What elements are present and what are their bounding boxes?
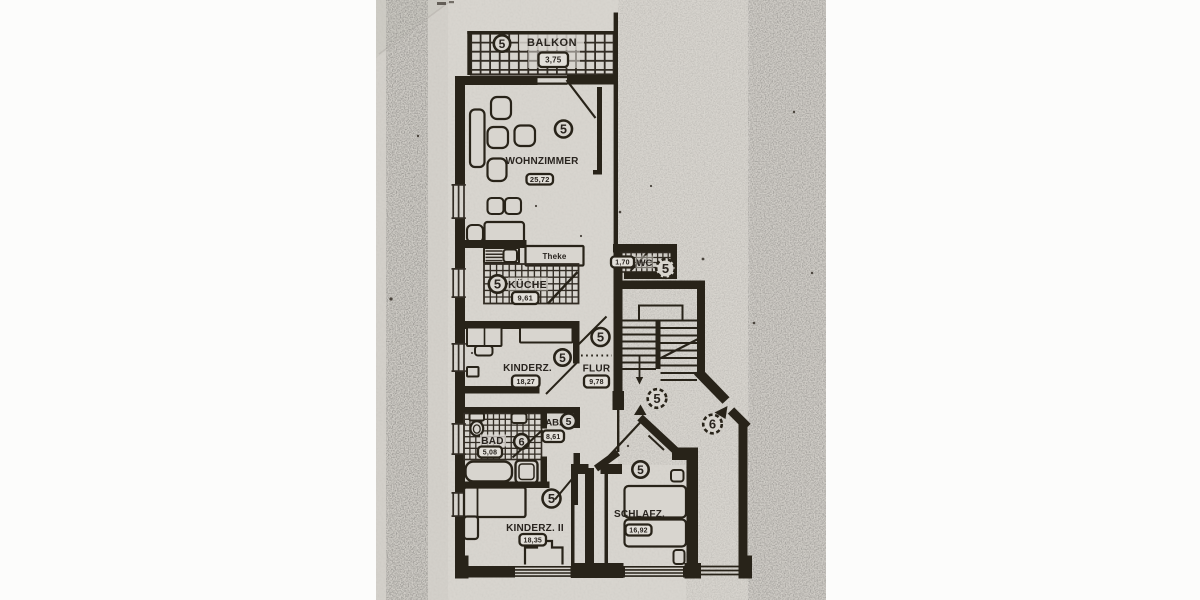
svg-text:5: 5 xyxy=(559,351,566,365)
svg-text:5: 5 xyxy=(653,391,660,406)
svg-text:KINDERZ. II: KINDERZ. II xyxy=(506,523,564,534)
svg-text:25,72: 25,72 xyxy=(530,175,550,184)
svg-text:5: 5 xyxy=(637,463,644,477)
svg-text:5: 5 xyxy=(494,277,501,292)
svg-text:5: 5 xyxy=(566,416,572,428)
svg-text:BALKON: BALKON xyxy=(527,37,577,49)
svg-text:18,27: 18,27 xyxy=(516,379,535,386)
svg-text:SCHLAFZ.: SCHLAFZ. xyxy=(614,509,665,520)
svg-text:5: 5 xyxy=(597,330,604,345)
svg-text:WC: WC xyxy=(637,258,653,269)
svg-text:6: 6 xyxy=(709,417,716,432)
svg-text:KÜCHE: KÜCHE xyxy=(508,278,547,291)
svg-text:16,92: 16,92 xyxy=(629,528,648,535)
svg-text:9,78: 9,78 xyxy=(589,379,603,386)
svg-text:AB.: AB. xyxy=(545,418,561,429)
svg-text:KINDERZ.: KINDERZ. xyxy=(503,363,552,374)
svg-text:8,61: 8,61 xyxy=(546,434,560,441)
svg-text:3,75: 3,75 xyxy=(545,56,562,65)
svg-text:5: 5 xyxy=(548,491,555,506)
svg-text:FLUR: FLUR xyxy=(583,364,611,375)
svg-text:5: 5 xyxy=(560,123,567,137)
svg-text:Theke: Theke xyxy=(542,252,566,261)
svg-text:18,35: 18,35 xyxy=(523,537,542,544)
svg-text:WOHNZIMMER: WOHNZIMMER xyxy=(505,156,579,167)
svg-text:9,61: 9,61 xyxy=(518,294,533,303)
svg-text:5: 5 xyxy=(662,261,669,276)
svg-text:5: 5 xyxy=(499,37,506,51)
svg-text:1,70: 1,70 xyxy=(615,260,629,267)
svg-text:5,08: 5,08 xyxy=(483,450,497,457)
